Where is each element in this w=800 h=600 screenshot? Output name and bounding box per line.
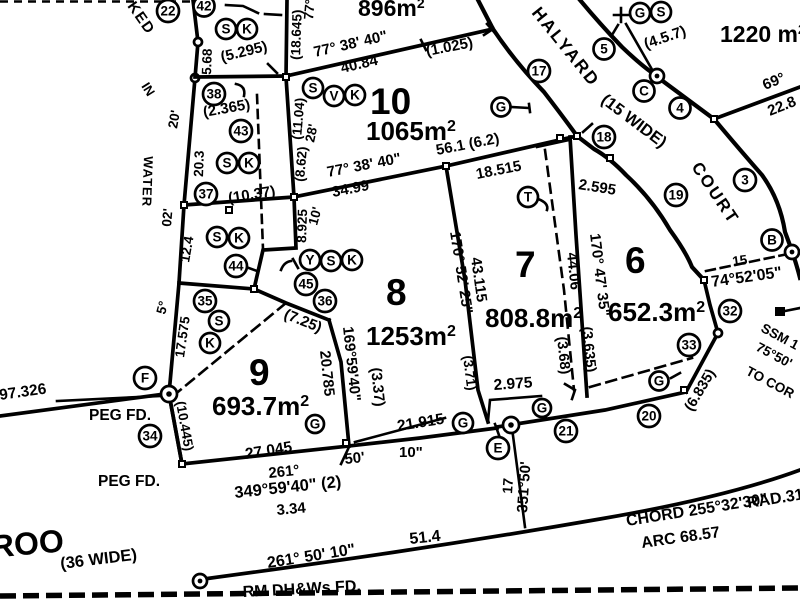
svg-text:G: G <box>458 416 469 431</box>
svg-text:G: G <box>496 100 507 115</box>
svg-text:S: S <box>214 314 223 329</box>
svg-text:G: G <box>635 6 646 21</box>
svg-text:K: K <box>244 156 254 171</box>
svg-text:K: K <box>205 336 215 351</box>
svg-text:3: 3 <box>741 173 749 188</box>
svg-text:37: 37 <box>198 187 213 202</box>
svg-text:4: 4 <box>676 101 684 116</box>
svg-text:19: 19 <box>668 188 683 203</box>
svg-text:S: S <box>222 156 231 171</box>
svg-text:K: K <box>347 253 357 268</box>
svg-text:S: S <box>656 5 665 20</box>
svg-text:5: 5 <box>600 42 608 57</box>
svg-text:50': 50' <box>344 449 366 468</box>
svg-text:6: 6 <box>625 240 646 281</box>
svg-text:35: 35 <box>197 294 213 309</box>
svg-text:17: 17 <box>531 64 546 79</box>
svg-text:S: S <box>212 230 221 245</box>
svg-text:351°50': 351°50' <box>514 461 535 513</box>
svg-text:15: 15 <box>731 252 748 269</box>
svg-text:2.975: 2.975 <box>493 374 533 394</box>
svg-text:E: E <box>493 441 502 456</box>
svg-text:77°: 77° <box>301 0 318 20</box>
svg-text:10": 10" <box>399 444 423 461</box>
svg-text:36: 36 <box>317 294 333 309</box>
svg-text:G: G <box>654 374 665 389</box>
svg-text:17: 17 <box>499 477 516 494</box>
svg-text:896m2: 896m2 <box>358 0 425 21</box>
svg-text:44: 44 <box>228 259 244 274</box>
svg-text:T: T <box>524 190 533 205</box>
svg-text:PEG FD.: PEG FD. <box>89 407 151 424</box>
svg-text:C: C <box>639 84 649 99</box>
svg-text:51.4: 51.4 <box>409 528 442 548</box>
svg-text:G: G <box>537 401 548 416</box>
svg-text:3.34: 3.34 <box>276 499 307 519</box>
svg-text:42: 42 <box>196 0 211 14</box>
svg-text:18: 18 <box>596 130 612 145</box>
svg-text:K: K <box>350 88 360 103</box>
svg-text:652.3m2: 652.3m2 <box>608 297 705 327</box>
svg-text:33: 33 <box>681 338 697 353</box>
svg-text:20.3: 20.3 <box>191 150 207 177</box>
svg-text:22: 22 <box>160 4 175 19</box>
svg-text:43: 43 <box>233 124 249 139</box>
svg-text:02': 02' <box>159 208 176 227</box>
svg-text:G: G <box>310 417 321 432</box>
svg-text:Y: Y <box>305 253 314 268</box>
svg-text:693.7m2: 693.7m2 <box>212 391 309 421</box>
svg-text:20': 20' <box>165 109 183 130</box>
svg-text:45: 45 <box>298 277 314 292</box>
svg-text:(8.62): (8.62) <box>292 146 310 182</box>
svg-text:808.8m2: 808.8m2 <box>485 303 582 333</box>
svg-text:8: 8 <box>386 272 407 313</box>
svg-text:PEG FD.: PEG FD. <box>98 473 160 490</box>
svg-text:V: V <box>329 89 338 104</box>
svg-text:7: 7 <box>515 244 536 285</box>
svg-text:K: K <box>234 231 244 246</box>
svg-text:34: 34 <box>142 429 158 444</box>
svg-text:1253m2: 1253m2 <box>366 321 456 351</box>
svg-text:S: S <box>308 81 317 96</box>
svg-text:21: 21 <box>558 424 574 439</box>
svg-text:F: F <box>141 371 149 386</box>
svg-text:20: 20 <box>641 409 656 424</box>
svg-text:ROO: ROO <box>0 522 65 564</box>
svg-text:WATER: WATER <box>139 156 156 207</box>
svg-text:1220 m2: 1220 m2 <box>720 21 800 47</box>
svg-text:5.68: 5.68 <box>199 48 215 75</box>
svg-text:38: 38 <box>206 87 222 102</box>
svg-text:S: S <box>326 254 335 269</box>
svg-text:K: K <box>242 22 252 37</box>
svg-text:9: 9 <box>249 352 270 393</box>
svg-text:32: 32 <box>722 304 737 319</box>
svg-text:B: B <box>767 233 777 248</box>
svg-text:S: S <box>221 22 230 37</box>
